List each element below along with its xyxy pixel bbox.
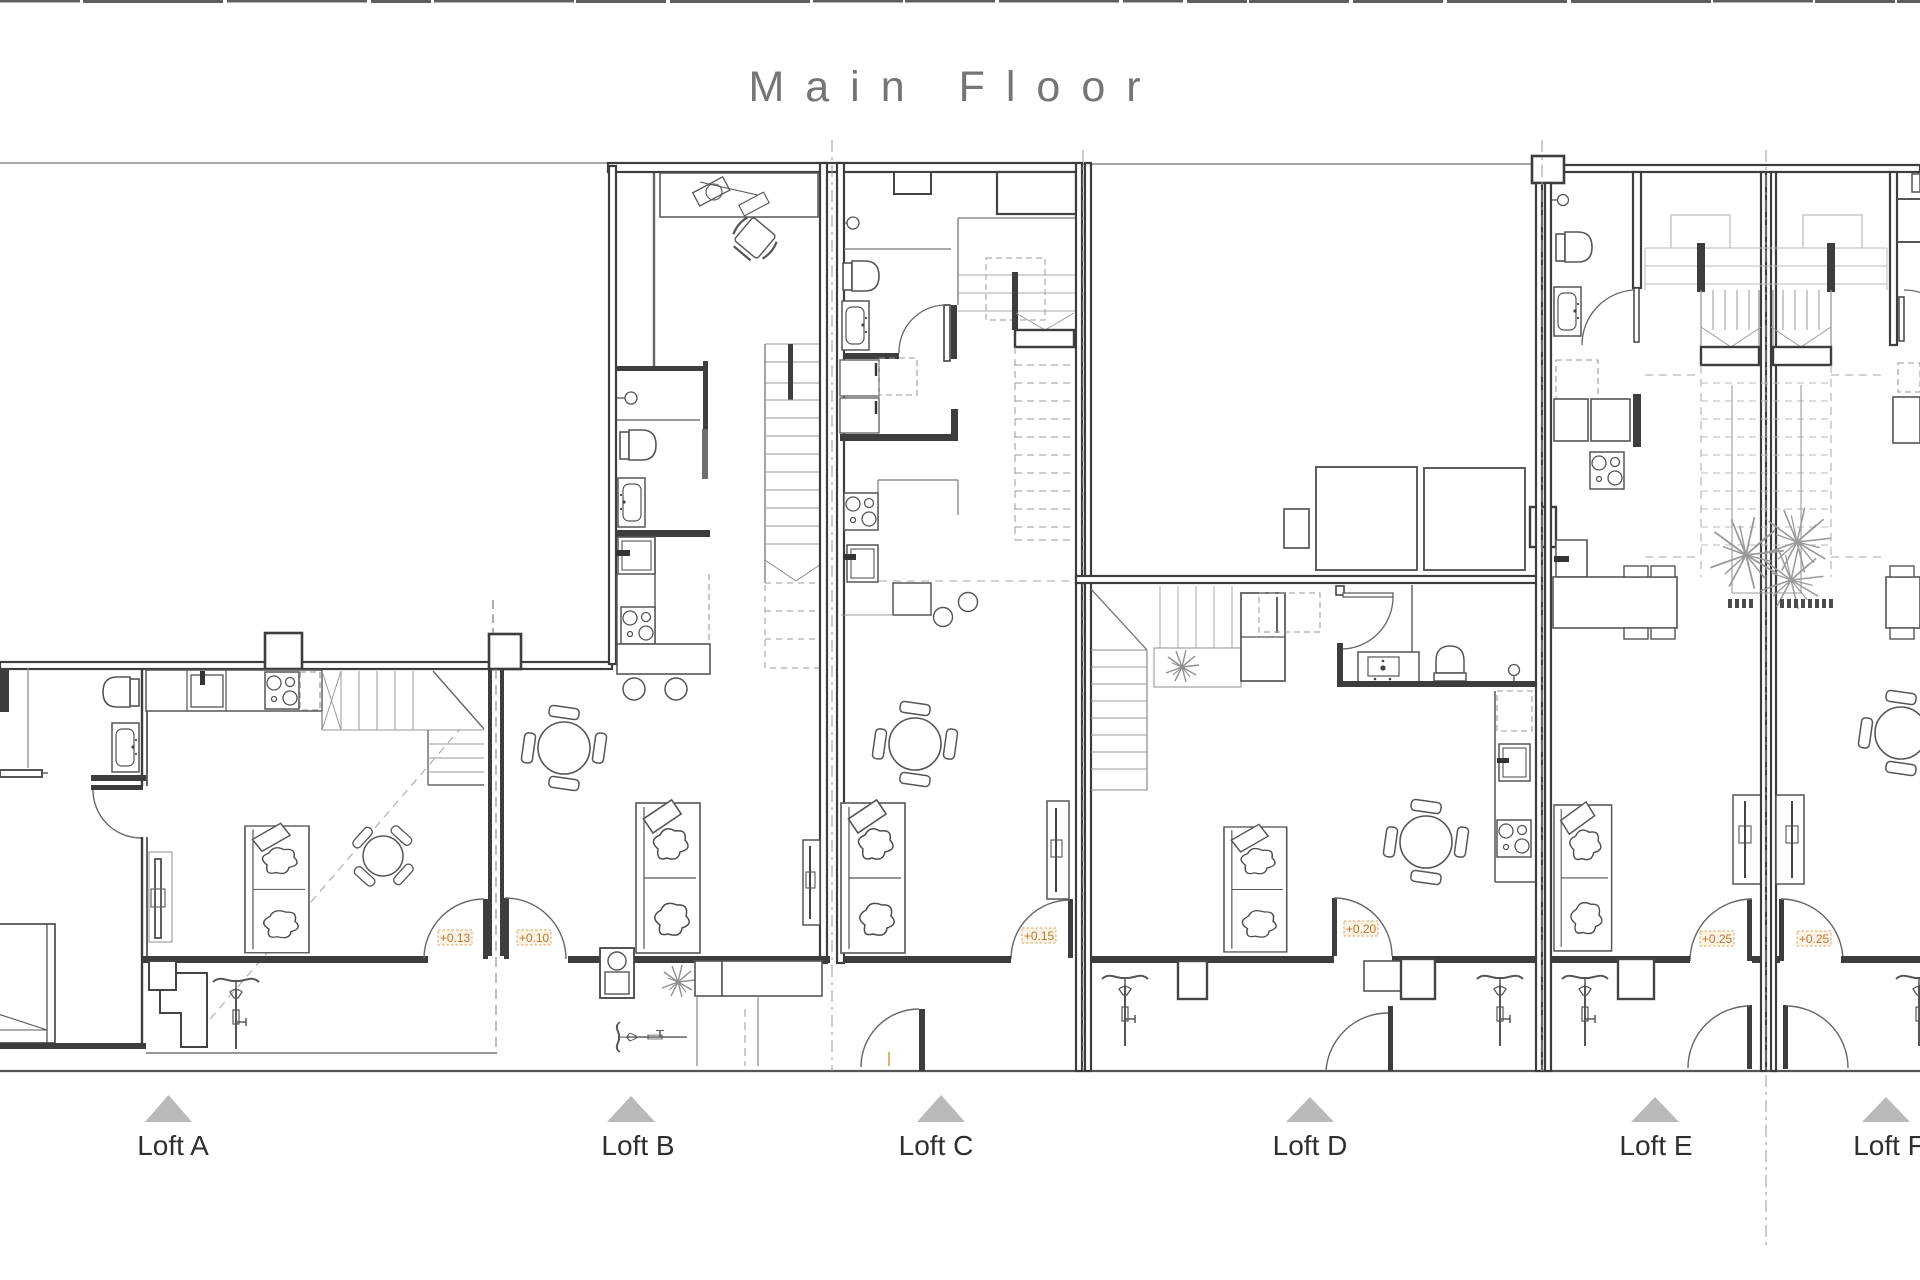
svg-text:+0.20: +0.20 — [1346, 922, 1377, 936]
svg-text:+0.25: +0.25 — [1799, 932, 1830, 946]
svg-text:Loft A: Loft A — [137, 1130, 209, 1161]
svg-text:+0.13: +0.13 — [440, 931, 471, 945]
svg-text:Loft D: Loft D — [1273, 1130, 1348, 1161]
svg-text:Loft C: Loft C — [899, 1130, 974, 1161]
svg-text:+0.10: +0.10 — [519, 931, 550, 945]
svg-text:Loft B: Loft B — [601, 1130, 674, 1161]
svg-text:Loft E: Loft E — [1619, 1130, 1692, 1161]
svg-text:+0.15: +0.15 — [1024, 929, 1055, 943]
svg-text:Loft F: Loft F — [1853, 1130, 1920, 1161]
svg-text:Main Floor: Main Floor — [748, 63, 1161, 111]
svg-text:+0.25: +0.25 — [1702, 932, 1733, 946]
